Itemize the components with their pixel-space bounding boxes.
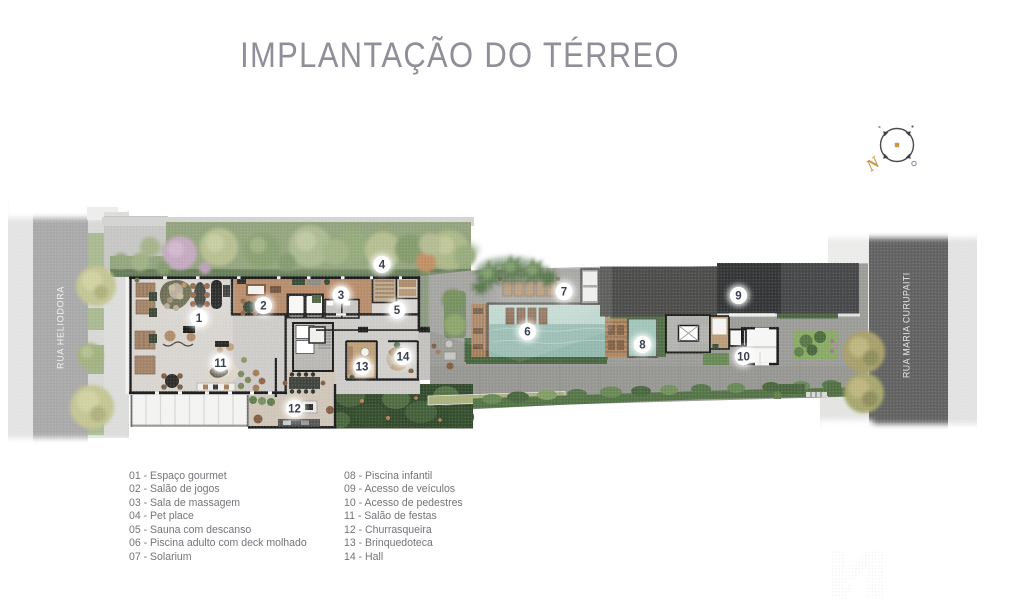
svg-text:2: 2 [260, 301, 266, 313]
svg-text:14: 14 [397, 352, 410, 364]
svg-text:11: 11 [214, 358, 227, 370]
svg-text:5: 5 [394, 305, 401, 317]
svg-text:1: 1 [196, 313, 203, 325]
svg-text:3: 3 [338, 290, 344, 302]
svg-text:9: 9 [735, 291, 741, 303]
svg-text:6: 6 [524, 327, 530, 339]
svg-text:7: 7 [561, 287, 567, 299]
svg-text:N: N [862, 152, 884, 176]
svg-text:4: 4 [379, 260, 386, 272]
svg-text:13: 13 [356, 362, 369, 374]
svg-text:12: 12 [288, 404, 301, 416]
svg-text:8: 8 [639, 340, 646, 352]
svg-text:10: 10 [737, 352, 750, 364]
